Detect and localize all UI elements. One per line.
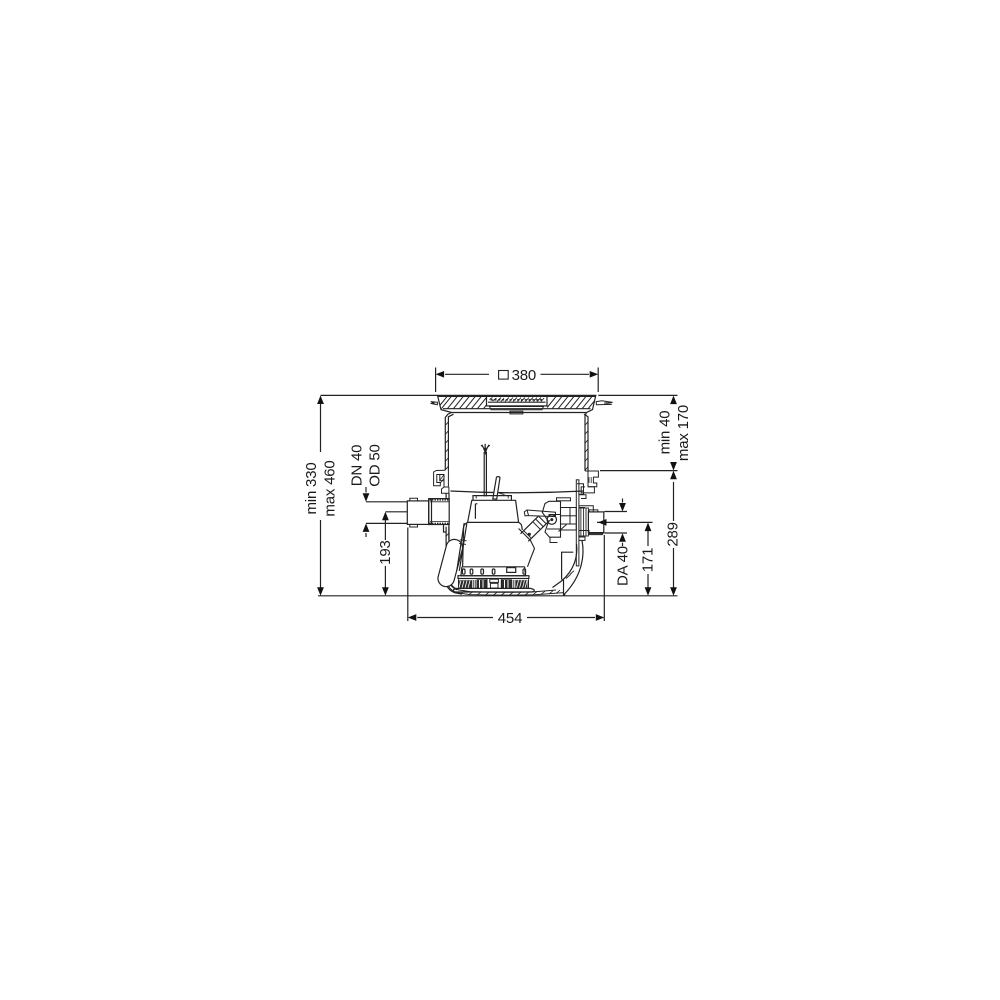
svg-text:max 170: max 170 — [675, 405, 692, 461]
svg-text:min 330: min 330 — [303, 463, 320, 515]
svg-text:454: 454 — [498, 610, 522, 627]
svg-text:171: 171 — [640, 548, 657, 572]
svg-text:DN 40: DN 40 — [348, 445, 365, 487]
svg-text:193: 193 — [377, 540, 394, 564]
svg-text:DA 40: DA 40 — [614, 546, 631, 586]
svg-text:380: 380 — [512, 367, 536, 384]
svg-text:289: 289 — [665, 522, 682, 546]
svg-text:OD 50: OD 50 — [366, 444, 383, 486]
svg-text:max 460: max 460 — [322, 460, 339, 516]
svg-text:min 40: min 40 — [657, 411, 674, 455]
